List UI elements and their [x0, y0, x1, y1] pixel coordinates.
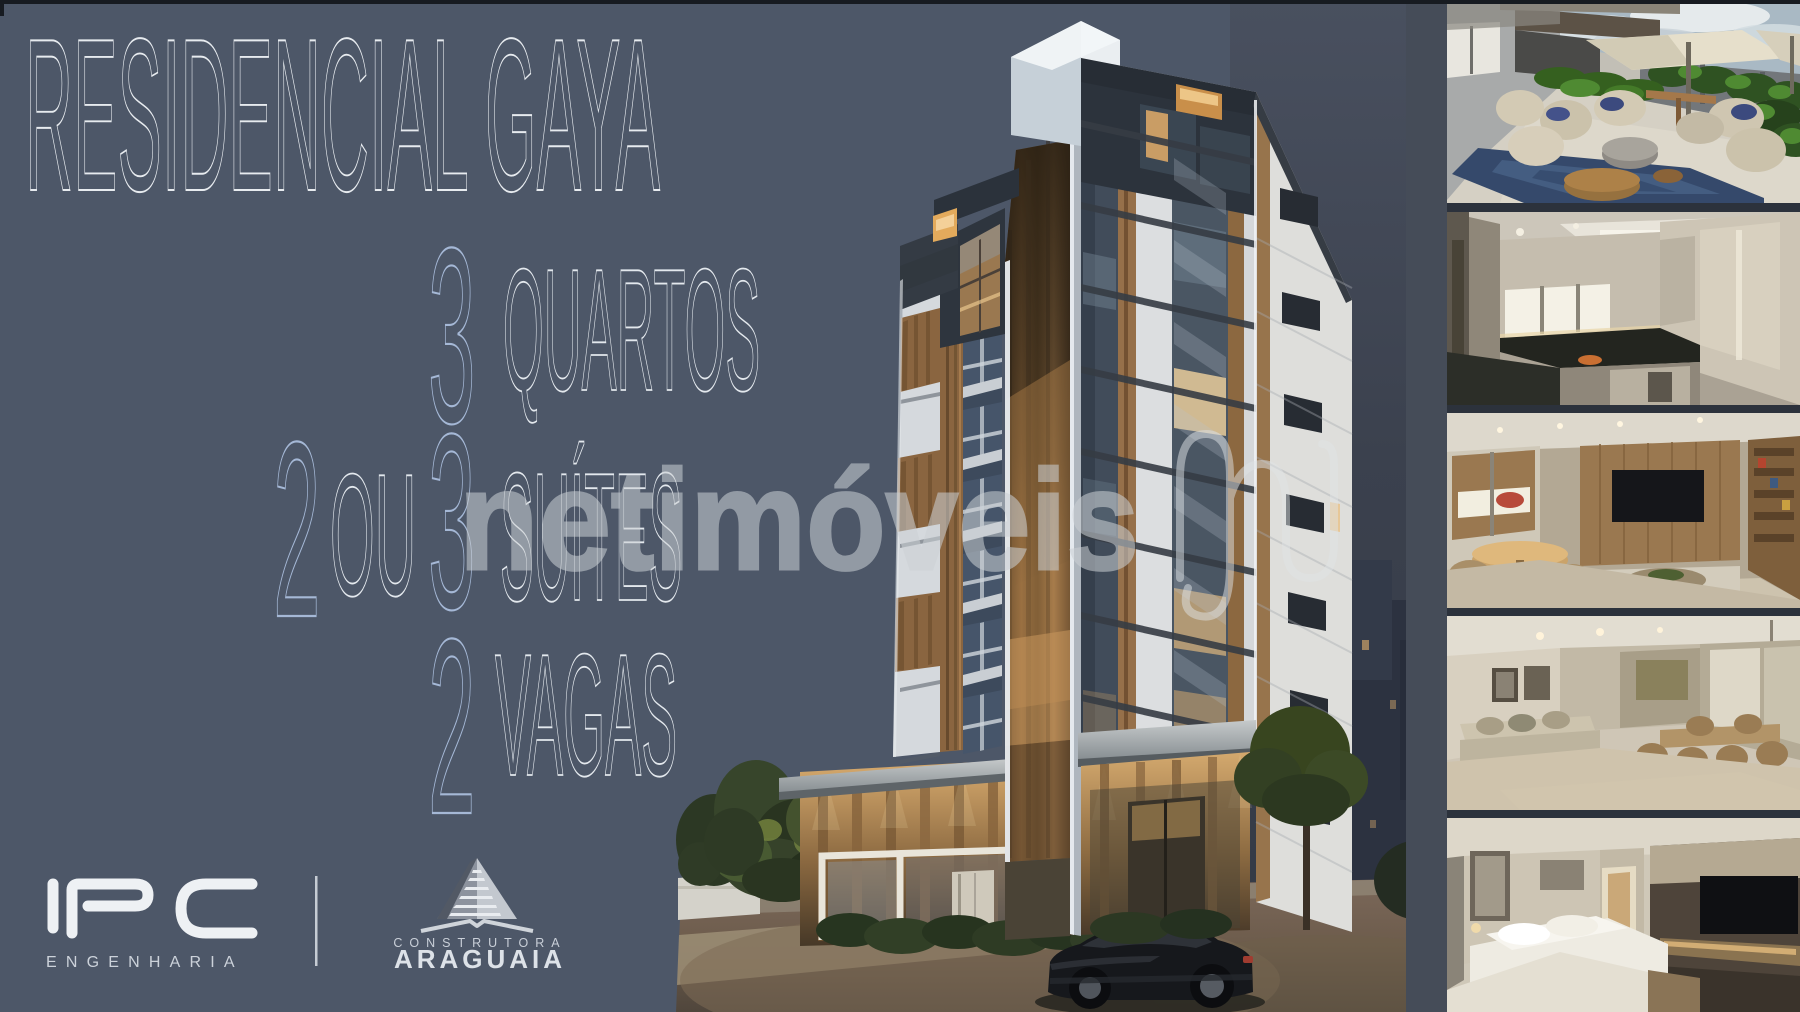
svg-text:QUARTOS: QUARTOS: [503, 233, 760, 427]
svg-text:netimóveis: netimóveis: [459, 441, 1139, 600]
svg-text:ENGENHARIA: ENGENHARIA: [46, 954, 244, 971]
svg-text:2: 2: [273, 390, 320, 670]
svg-text:ARAGUAIA: ARAGUAIA: [394, 944, 566, 974]
svg-text:OU: OU: [330, 438, 416, 632]
svg-text:RESIDENCIAL GAYA: RESIDENCIAL GAYA: [25, 0, 660, 237]
svg-text:VAGAS: VAGAS: [495, 618, 677, 812]
svg-text:2: 2: [428, 587, 475, 867]
